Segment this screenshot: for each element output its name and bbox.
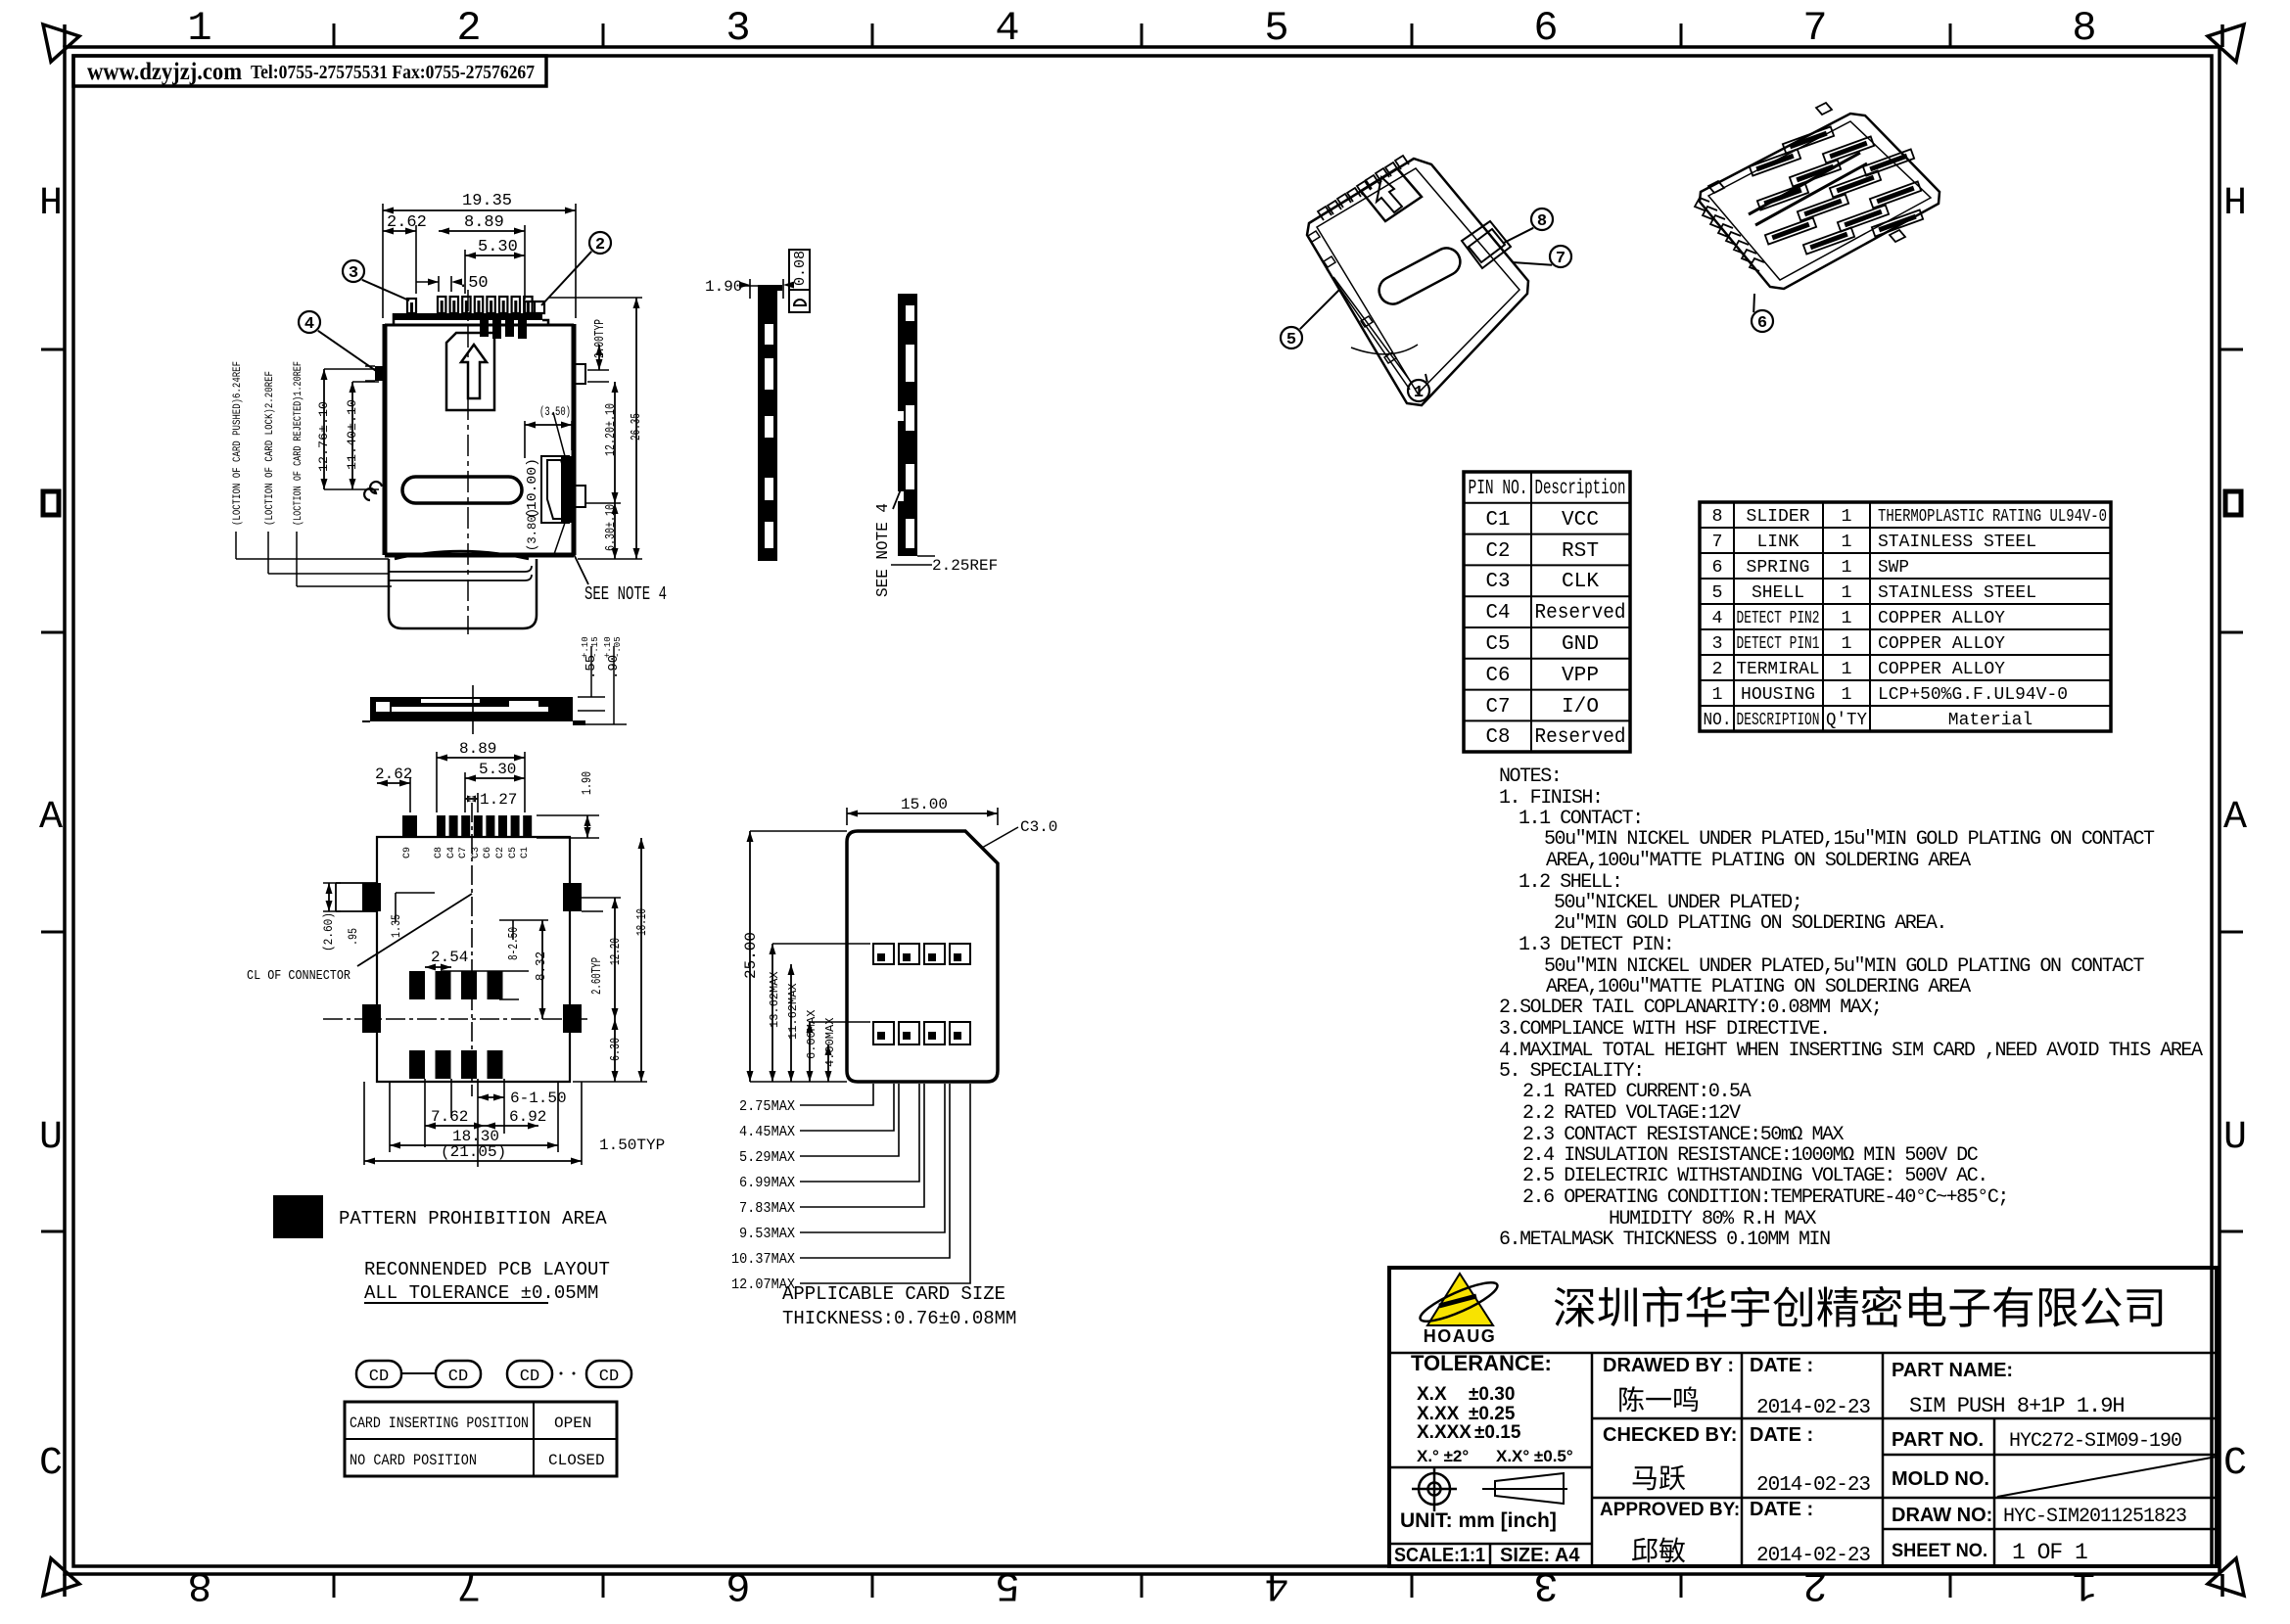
svg-text:C3: C3: [1486, 571, 1511, 593]
svg-text:1: 1: [1414, 384, 1424, 402]
svg-text:1: 1: [1842, 634, 1852, 654]
svg-text:COPPER ALLOY: COPPER ALLOY: [1878, 634, 2005, 654]
svg-text:C6: C6: [1486, 665, 1511, 687]
svg-text:DATE :: DATE :: [1750, 1355, 1813, 1376]
svg-text:APPLICABLE CARD SIZE: APPLICABLE CARD SIZE: [782, 1283, 1005, 1305]
svg-text:5: 5: [1712, 583, 1723, 603]
svg-text:9.53MAX: 9.53MAX: [739, 1226, 795, 1242]
svg-text:THERMOPLASTIC RATING UL94V-0: THERMOPLASTIC RATING UL94V-0: [1878, 507, 2107, 527]
svg-text:13.62MAX: 13.62MAX: [768, 971, 781, 1028]
svg-text:6: 6: [1712, 558, 1723, 578]
svg-text:18.10: 18.10: [634, 908, 650, 936]
svg-text:+.10: +.10: [581, 636, 590, 658]
svg-text:±0.15: ±0.15: [1474, 1422, 1521, 1443]
svg-text:8-2.50: 8-2.50: [506, 927, 522, 960]
svg-text:12.20: 12.20: [608, 938, 624, 965]
svg-text:6: 6: [1757, 314, 1767, 333]
svg-text:C7: C7: [458, 847, 469, 858]
svg-text:X.XX: X.XX: [1417, 1404, 1460, 1424]
svg-text:1: 1: [1842, 609, 1852, 628]
svg-text:1: 1: [1842, 558, 1852, 578]
svg-text:5: 5: [1286, 331, 1296, 349]
svg-text:5.30: 5.30: [479, 761, 516, 778]
svg-text:THICKNESS:0.76±0.08MM: THICKNESS:0.76±0.08MM: [782, 1308, 1016, 1329]
svg-text:50u″NICKEL UNDER PLATED;: 50u″NICKEL UNDER PLATED;: [1554, 892, 1801, 914]
svg-text:5. SPECIALITY:: 5. SPECIALITY:: [1499, 1060, 1644, 1083]
svg-text:DESCRIPTION: DESCRIPTION: [1737, 711, 1820, 730]
svg-text:STAINLESS STEEL: STAINLESS STEEL: [1878, 583, 2036, 603]
svg-text:NOTES:: NOTES:: [1499, 766, 1561, 788]
svg-text:1: 1: [2072, 1561, 2096, 1608]
svg-text:1.90: 1.90: [580, 771, 595, 795]
svg-text:8: 8: [1537, 212, 1547, 231]
svg-text:.95: .95: [346, 928, 360, 946]
svg-text:Tel:0755-27575531 Fax:0755-27: Tel:0755-27575531 Fax:0755-27576267: [251, 62, 535, 83]
svg-text:6.00MAX: 6.00MAX: [805, 1010, 818, 1059]
svg-text:2014-02-23: 2014-02-23: [1756, 1545, 1870, 1567]
svg-text:STAINLESS STEEL: STAINLESS STEEL: [1878, 533, 2036, 552]
svg-text:8.32: 8.32: [534, 951, 549, 981]
svg-text:PATTERN PROHIBITION AREA: PATTERN PROHIBITION AREA: [339, 1208, 607, 1230]
svg-text:C8: C8: [1486, 726, 1511, 749]
svg-text:C2: C2: [495, 847, 506, 858]
svg-text:1.3 DETECT PIN:: 1.3 DETECT PIN:: [1519, 934, 1673, 956]
svg-text:VCC: VCC: [1562, 509, 1599, 532]
svg-text:2.SOLDER TAIL COPLANARITY:0.08: 2.SOLDER TAIL COPLANARITY:0.08MM MAX;: [1499, 997, 1881, 1019]
svg-text:SHEET NO.: SHEET NO.: [1892, 1541, 1987, 1561]
svg-text:2.25REF: 2.25REF: [932, 557, 998, 575]
svg-text:X.X: X.X: [1417, 1384, 1447, 1405]
svg-text:H: H: [2223, 182, 2247, 226]
svg-text:Reserved: Reserved: [1535, 726, 1626, 749]
svg-text:PART NAME:: PART NAME:: [1892, 1360, 2013, 1381]
svg-text:LCP+50%G.F.UL94V-0: LCP+50%G.F.UL94V-0: [1878, 685, 2068, 705]
svg-text:ALL TOLERANCE ±0.05MM: ALL TOLERANCE ±0.05MM: [364, 1282, 598, 1304]
svg-text:H: H: [39, 182, 63, 226]
svg-text:5: 5: [995, 1561, 1019, 1608]
svg-text:6.99MAX: 6.99MAX: [739, 1175, 795, 1191]
svg-text:AREA,100u″MATTE PLATING ON SOL: AREA,100u″MATTE PLATING ON SOLDERING ARE…: [1546, 976, 1971, 998]
svg-text:DETECT PIN2: DETECT PIN2: [1737, 609, 1820, 628]
svg-text:2.1 RATED CURRENT:0.5A: 2.1 RATED CURRENT:0.5A: [1522, 1081, 1752, 1103]
svg-text:1. FINISH:: 1. FINISH:: [1499, 787, 1603, 810]
svg-text:4.00MAX: 4.00MAX: [823, 1018, 837, 1067]
svg-text:5: 5: [1264, 5, 1288, 52]
svg-text:C8: C8: [434, 847, 444, 858]
svg-text:1.2 SHELL:: 1.2 SHELL:: [1519, 871, 1622, 894]
svg-text:1.1 CONTACT:: 1.1 CONTACT:: [1519, 808, 1643, 830]
svg-text:3: 3: [725, 5, 750, 52]
svg-text:25.00: 25.00: [742, 932, 760, 979]
svg-text:C1: C1: [1486, 509, 1511, 532]
svg-text:1 OF 1: 1 OF 1: [2012, 1540, 2087, 1565]
svg-text:HUMIDITY 80% R.H MAX: HUMIDITY 80% R.H MAX: [1609, 1208, 1816, 1230]
svg-text:C4: C4: [1486, 602, 1511, 625]
svg-text:4.MAXIMAL TOTAL HEIGHT WHEN IN: 4.MAXIMAL TOTAL HEIGHT WHEN INSERTING SI…: [1499, 1040, 2203, 1062]
svg-text:CL OF CONNECTOR: CL OF CONNECTOR: [247, 968, 351, 984]
svg-text:DATE :: DATE :: [1750, 1424, 1813, 1446]
svg-text:12.20±.10: 12.20±.10: [603, 403, 619, 456]
svg-text:7.62: 7.62: [431, 1108, 468, 1126]
svg-text:2.2 RATED VOLTAGE:12V: 2.2 RATED VOLTAGE:12V: [1522, 1102, 1741, 1125]
svg-text:5.29MAX: 5.29MAX: [739, 1149, 795, 1166]
svg-text:SIZE: A4: SIZE: A4: [1500, 1545, 1580, 1566]
svg-text:1: 1: [1842, 583, 1852, 603]
svg-text:50u″MIN NICKEL UNDER PLATED,5u: 50u″MIN NICKEL UNDER PLATED,5u″MIN GOLD …: [1544, 955, 2144, 978]
svg-text:7: 7: [1712, 533, 1723, 552]
svg-text:C6: C6: [483, 847, 493, 858]
svg-text:4: 4: [995, 5, 1019, 52]
svg-text:6.92: 6.92: [509, 1108, 546, 1126]
svg-text:SWP: SWP: [1878, 558, 1909, 578]
svg-text:Reserved: Reserved: [1535, 602, 1626, 625]
svg-text:2014-02-23: 2014-02-23: [1756, 1397, 1870, 1419]
svg-text:(21.05): (21.05): [441, 1143, 506, 1161]
svg-text:UNIT: mm [inch]: UNIT: mm [inch]: [1400, 1509, 1557, 1532]
svg-text:±0.30: ±0.30: [1469, 1384, 1515, 1405]
svg-text:OPEN: OPEN: [554, 1415, 591, 1432]
svg-text:VPP: VPP: [1562, 665, 1599, 687]
svg-text:(LOCTION OF CARD REJECTED)1.20: (LOCTION OF CARD REJECTED)1.20REF: [293, 361, 304, 526]
svg-text:C1: C1: [520, 847, 531, 858]
svg-text:4: 4: [1264, 1561, 1288, 1608]
svg-text:SLIDER: SLIDER: [1747, 507, 1810, 527]
svg-text:1.27: 1.27: [480, 791, 517, 809]
svg-text:X.XXX: X.XXX: [1417, 1422, 1472, 1443]
svg-text:(2.60): (2.60): [321, 912, 336, 951]
svg-text:0.08: 0.08: [792, 251, 809, 286]
svg-text:8: 8: [187, 1561, 211, 1608]
svg-text:C2: C2: [1486, 540, 1511, 563]
svg-text:11.62MAX: 11.62MAX: [786, 983, 800, 1040]
svg-text:5.30: 5.30: [478, 238, 518, 256]
svg-text:PART NO.: PART NO.: [1892, 1429, 1984, 1451]
svg-text:APPROVED BY:: APPROVED BY:: [1600, 1500, 1740, 1520]
svg-text:19.35: 19.35: [462, 192, 512, 210]
svg-text:C5: C5: [1486, 633, 1511, 656]
svg-text:8: 8: [2072, 5, 2096, 52]
svg-text:1: 1: [1842, 660, 1852, 679]
svg-text:HOUSING: HOUSING: [1741, 685, 1815, 705]
svg-text:X.° ±2°: X.° ±2°: [1417, 1447, 1469, 1465]
svg-text:COPPER ALLOY: COPPER ALLOY: [1878, 609, 2005, 628]
svg-text:2.62: 2.62: [375, 766, 412, 783]
svg-text:4: 4: [1712, 609, 1723, 628]
svg-text:A: A: [2223, 796, 2247, 840]
svg-text:A: A: [39, 796, 63, 840]
svg-text:NO CARD POSITION: NO CARD POSITION: [350, 1452, 477, 1469]
svg-text:I/O: I/O: [1562, 696, 1599, 719]
svg-text:CD: CD: [448, 1368, 468, 1386]
svg-text:4.45MAX: 4.45MAX: [739, 1124, 795, 1140]
svg-text:2.60TYP: 2.60TYP: [589, 957, 605, 995]
svg-text:1: 1: [1842, 507, 1852, 527]
svg-text:Description: Description: [1535, 478, 1626, 500]
svg-text:C4: C4: [446, 847, 457, 858]
svg-text:7.83MAX: 7.83MAX: [739, 1200, 795, 1217]
svg-text:HYC-SIM2011251823: HYC-SIM2011251823: [2003, 1506, 2186, 1528]
svg-text:HOAUG: HOAUG: [1424, 1326, 1497, 1346]
svg-text:RECONNENDED PCB LAYOUT: RECONNENDED PCB LAYOUT: [364, 1259, 610, 1280]
svg-text:TOLERANCE:: TOLERANCE:: [1411, 1351, 1552, 1375]
svg-text:C: C: [2223, 1442, 2247, 1486]
svg-text:DRAW NO:: DRAW NO:: [1892, 1505, 1992, 1526]
svg-text:6: 6: [1533, 5, 1558, 52]
svg-text:GND: GND: [1562, 633, 1599, 656]
svg-text:8.89: 8.89: [459, 740, 496, 758]
svg-text:C3.0: C3.0: [1020, 818, 1057, 836]
svg-text:DATE :: DATE :: [1750, 1499, 1813, 1520]
svg-text:CLK: CLK: [1562, 571, 1599, 593]
svg-text:1: 1: [1842, 685, 1852, 705]
svg-text:7: 7: [456, 1561, 481, 1608]
svg-text:3: 3: [349, 264, 358, 283]
svg-text:6: 6: [725, 1561, 750, 1608]
svg-text:C9: C9: [402, 847, 413, 858]
svg-text:2.62: 2.62: [387, 213, 427, 232]
svg-text:1: 1: [1712, 685, 1723, 705]
svg-text:(3.80): (3.80): [525, 508, 539, 551]
svg-text:LINK: LINK: [1757, 533, 1799, 552]
svg-text:1: 1: [187, 5, 211, 52]
svg-text:SEE NOTE 4: SEE NOTE 4: [874, 503, 893, 597]
svg-text:Q'TY: Q'TY: [1826, 711, 1867, 730]
svg-text:AREA,100u″MATTE PLATING ON SOL: AREA,100u″MATTE PLATING ON SOLDERING ARE…: [1546, 850, 1971, 872]
svg-text:SIM PUSH 8+1P 1.9H: SIM PUSH 8+1P 1.9H: [1909, 1394, 2125, 1418]
svg-text:SPRING: SPRING: [1747, 558, 1810, 578]
svg-text:3.COMPLIANCE WITH HSF DIRECTIV: 3.COMPLIANCE WITH HSF DIRECTIVE.: [1499, 1018, 1830, 1041]
svg-text:7: 7: [1802, 5, 1827, 52]
svg-text:CARD INSERTING POSITION: CARD INSERTING POSITION: [350, 1415, 529, 1432]
svg-text:SCALE:1:1: SCALE:1:1: [1394, 1545, 1485, 1566]
svg-text:U: U: [39, 1116, 63, 1160]
svg-text:2: 2: [1712, 660, 1723, 679]
svg-text:CD: CD: [520, 1368, 539, 1386]
svg-text:HYC272-SIM09-190: HYC272-SIM09-190: [2009, 1430, 2181, 1453]
svg-text:CD: CD: [599, 1368, 619, 1386]
svg-text:2.54: 2.54: [431, 949, 468, 966]
svg-text:1.90: 1.90: [705, 278, 742, 296]
svg-text:2.5 DIELECTRIC WITHSTANDING VO: 2.5 DIELECTRIC WITHSTANDING VOLTAGE: 500…: [1522, 1165, 1987, 1187]
svg-text:X.X° ±0.5°: X.X° ±0.5°: [1496, 1447, 1573, 1465]
svg-text:.50: .50: [458, 274, 489, 293]
svg-text:MOLD NO.: MOLD NO.: [1892, 1468, 1989, 1490]
svg-text:8: 8: [1712, 507, 1723, 527]
svg-text:2.3 CONTACT RESISTANCE:50mΩ MA: 2.3 CONTACT RESISTANCE:50mΩ MAX: [1522, 1124, 1845, 1146]
svg-text:2: 2: [456, 5, 481, 52]
svg-text:CLOSED: CLOSED: [548, 1452, 605, 1469]
svg-text:SEE NOTE 4: SEE NOTE 4: [584, 583, 667, 605]
svg-text:C: C: [39, 1442, 63, 1486]
svg-text:RST: RST: [1562, 540, 1599, 563]
svg-text:6.METALMASK THICKNESS 0.10MM M: 6.METALMASK THICKNESS 0.10MM MIN: [1499, 1229, 1830, 1251]
svg-text:PIN NO.: PIN NO.: [1469, 478, 1528, 500]
svg-text:3: 3: [1533, 1561, 1558, 1608]
svg-text:COPPER ALLOY: COPPER ALLOY: [1878, 660, 2005, 679]
svg-text:C5: C5: [508, 847, 519, 858]
svg-text:1: 1: [1842, 533, 1852, 552]
svg-text:50u″MIN NICKEL UNDER PLATED,15: 50u″MIN NICKEL UNDER PLATED,15u″MIN GOLD…: [1544, 828, 2155, 851]
svg-text:2.75MAX: 2.75MAX: [739, 1098, 795, 1115]
svg-text:(3.50): (3.50): [539, 404, 571, 419]
svg-text:2: 2: [1802, 1561, 1827, 1608]
svg-text:6.30: 6.30: [608, 1038, 624, 1061]
svg-text:C7: C7: [1486, 696, 1511, 719]
svg-text:SHELL: SHELL: [1752, 583, 1804, 603]
svg-text:(LOCTION OF CARD LOCK)2.20REF: (LOCTION OF CARD LOCK)2.20REF: [264, 371, 276, 526]
svg-text:1.50TYP: 1.50TYP: [599, 1137, 665, 1154]
svg-text:+.10: +.10: [603, 636, 613, 658]
svg-text:NO.: NO.: [1704, 711, 1732, 730]
svg-text:DETECT PIN1: DETECT PIN1: [1737, 634, 1820, 654]
svg-text:Material: Material: [1948, 711, 2033, 730]
svg-text:±0.25: ±0.25: [1469, 1404, 1516, 1424]
svg-text:(LOCTION OF CARD PUSHED)6.24RE: (LOCTION OF CARD PUSHED)6.24REF: [232, 361, 244, 526]
svg-text:2014-02-23: 2014-02-23: [1756, 1474, 1870, 1497]
svg-text:CD: CD: [369, 1368, 389, 1386]
svg-text:TERMIRAL: TERMIRAL: [1737, 660, 1820, 679]
svg-text:CHECKED BY:: CHECKED BY:: [1603, 1424, 1737, 1446]
svg-text:15.00: 15.00: [901, 796, 948, 813]
svg-text:3: 3: [1712, 634, 1723, 654]
svg-text:10.37MAX: 10.37MAX: [731, 1251, 795, 1268]
svg-text:2.4 INSULATION RESISTANCE:1000: 2.4 INSULATION RESISTANCE:1000MΩ MIN 500…: [1522, 1144, 1979, 1167]
svg-text:4: 4: [304, 315, 314, 334]
svg-text:7: 7: [1556, 250, 1566, 268]
svg-text:DRAWED BY :: DRAWED BY :: [1603, 1355, 1734, 1376]
svg-text:U: U: [2223, 1116, 2247, 1160]
svg-text:8.89: 8.89: [464, 213, 504, 232]
svg-text:2: 2: [595, 236, 605, 255]
svg-text:2.6 OPERATING CONDITION:TEMPER: 2.6 OPERATING CONDITION:TEMPERATURE-40°C…: [1522, 1186, 2008, 1209]
svg-text:www.dzyjzj.com: www.dzyjzj.com: [87, 59, 242, 85]
svg-text:2u″MIN GOLD PLATING ON SOLDERI: 2u″MIN GOLD PLATING ON SOLDERING AREA.: [1554, 912, 1946, 935]
